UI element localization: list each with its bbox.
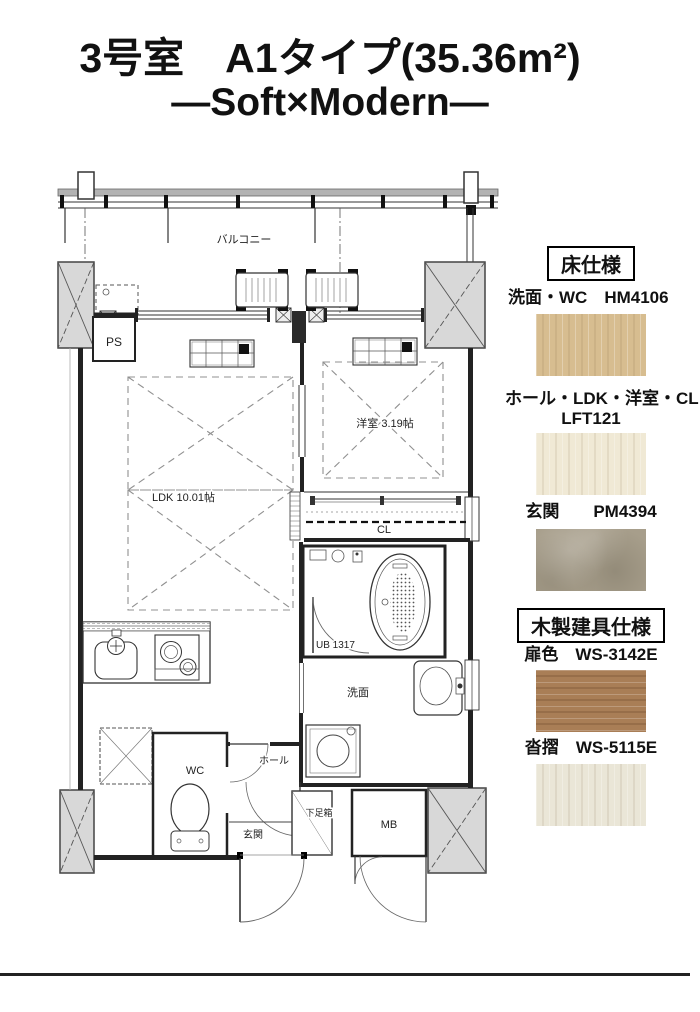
material-swatch-pm4394	[536, 529, 646, 591]
partition-wall	[299, 343, 305, 492]
meter-box: MB	[352, 790, 426, 922]
material-swatch-lft121	[536, 433, 646, 495]
ac-outdoor-unit	[236, 269, 288, 311]
refrigerator-space	[100, 728, 152, 784]
floor-spec-item-code: LFT121	[505, 409, 677, 429]
entrance-label: 玄関	[243, 828, 263, 841]
material-swatch-hm4106	[536, 314, 646, 376]
unit-type-title: 3号室 A1タイプ(35.36m²)	[0, 36, 660, 81]
floor-plan-drawing: バルコニー	[40, 165, 500, 940]
ceiling-light	[190, 340, 254, 367]
material-swatch-ws5115e	[536, 764, 646, 826]
column-bottom-left	[60, 790, 94, 873]
washroom-label: 洗面	[347, 686, 369, 699]
style-subtitle: —Soft×Modern—	[0, 81, 660, 126]
column-top-right	[425, 262, 485, 348]
floor-spec-item-label: 洗面・WC HM4106	[505, 288, 677, 308]
ps-label: PS	[106, 335, 122, 349]
entrance-door	[94, 852, 307, 922]
pipe-space: PS	[93, 317, 135, 361]
meter-box-label: MB	[381, 819, 398, 831]
wc-room: WC	[153, 733, 227, 859]
column-top-left	[58, 262, 94, 348]
ac-outdoor-unit-2	[306, 269, 358, 311]
material-swatch-ws3142e	[536, 670, 646, 732]
bottom-rule	[0, 973, 690, 976]
floor-plan-svg: バルコニー	[40, 165, 500, 935]
wc-label: WC	[186, 765, 204, 777]
unit-bath: UB 1317	[303, 546, 445, 657]
shoe-box-label: 下足箱	[305, 807, 332, 818]
ceiling-light-2	[353, 338, 417, 365]
page-title: 3号室 A1タイプ(35.36m²) —Soft×Modern—	[0, 36, 660, 126]
spec-panel: 床仕様 洗面・WC HM4106 ホール・LDK・洋室・CL LFT121 玄関…	[505, 246, 677, 826]
ldk-label: LDK 10.01帖	[152, 491, 215, 504]
floor-spec-item-label: ホール・LDK・洋室・CL	[505, 389, 677, 409]
fixture-spec-heading: 木製建具仕様	[517, 608, 665, 643]
floor-plan-sheet: 3号室 A1タイプ(35.36m²) —Soft×Modern—	[0, 0, 700, 1012]
western-room-label: 洋室 3.19帖	[356, 416, 413, 430]
kitchen	[83, 622, 210, 683]
fixture-spec-item-label: 沓摺 WS-5115E	[505, 738, 677, 758]
hall-label: ホール	[259, 755, 289, 767]
floor-spec-heading: 床仕様	[547, 246, 635, 281]
unit-bath-label: UB 1317	[316, 640, 355, 651]
column-bottom-right	[428, 788, 486, 873]
balcony-label: バルコニー	[217, 233, 272, 246]
floor-spec-item-label: 玄関 PM4394	[505, 502, 677, 522]
fixture-spec-item-label: 扉色 WS-3142E	[505, 645, 677, 665]
closet-label: CL	[377, 524, 391, 536]
